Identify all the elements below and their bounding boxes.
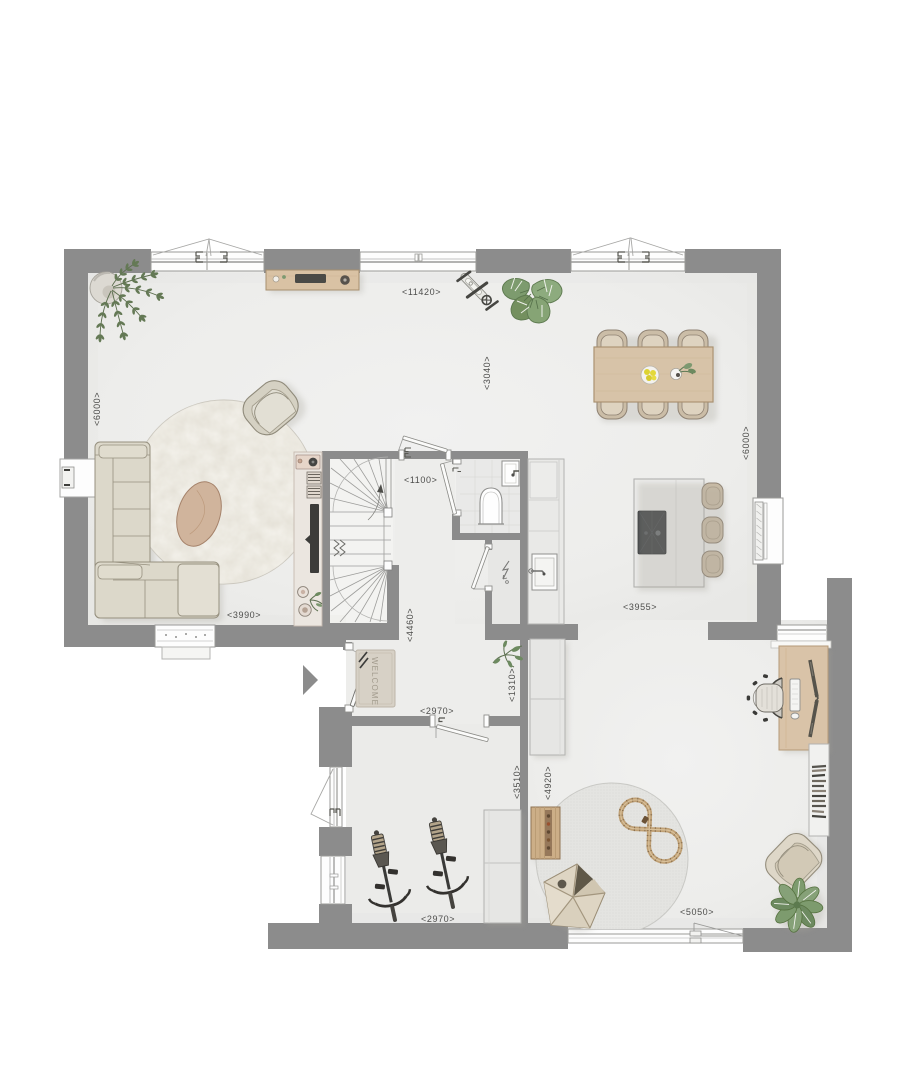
svg-text:<3040>: <3040> bbox=[482, 356, 492, 390]
svg-text:<6000>: <6000> bbox=[741, 426, 751, 460]
svg-text:<2970>: <2970> bbox=[420, 706, 454, 716]
svg-text:<1100>: <1100> bbox=[404, 475, 437, 485]
svg-text:<4920>: <4920> bbox=[543, 766, 553, 800]
svg-text:<3510>: <3510> bbox=[512, 765, 522, 799]
svg-text:<1310>: <1310> bbox=[507, 668, 517, 702]
svg-text:<5050>: <5050> bbox=[680, 907, 714, 917]
svg-text:<11420>: <11420> bbox=[402, 287, 441, 297]
svg-text:<3990>: <3990> bbox=[227, 610, 261, 620]
svg-text:<6000>: <6000> bbox=[92, 392, 102, 426]
svg-text:WELCOME: WELCOME bbox=[370, 657, 379, 706]
svg-text:<4460>: <4460> bbox=[405, 608, 415, 642]
svg-text:<2970>: <2970> bbox=[421, 914, 455, 924]
svg-text:<3955>: <3955> bbox=[623, 602, 657, 612]
